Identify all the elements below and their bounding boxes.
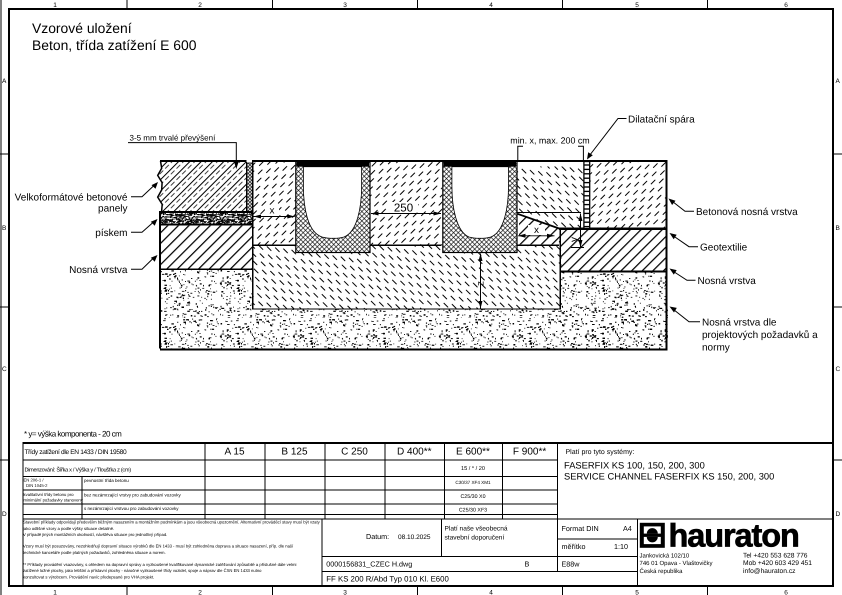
svg-text:D 400**: D 400** bbox=[397, 447, 432, 458]
svg-text:A: A bbox=[2, 78, 7, 85]
svg-text:měřítko: měřítko bbox=[562, 542, 586, 551]
svg-text:Stavební příklady odpovídají p: Stavební příklady odpovídají především b… bbox=[23, 520, 321, 525]
svg-text:6: 6 bbox=[784, 590, 788, 595]
svg-text:V případě jiných montážních ok: V případě jiných montážních okolností, n… bbox=[23, 532, 167, 537]
svg-text:C30/37 XF4 XM1: C30/37 XF4 XM1 bbox=[455, 480, 491, 485]
svg-text:Třídy zatížení dle EN 1433 / D: Třídy zatížení dle EN 1433 / DIN 19580 bbox=[25, 449, 127, 456]
svg-text:Mob +420 603 429 451: Mob +420 603 429 451 bbox=[743, 560, 812, 567]
svg-text:A: A bbox=[836, 78, 841, 85]
svg-text:x: x bbox=[270, 206, 275, 217]
svg-text:0000156831_CZEC H.dwg: 0000156831_CZEC H.dwg bbox=[326, 560, 412, 569]
svg-text:2: 2 bbox=[198, 2, 202, 9]
svg-text:3: 3 bbox=[343, 2, 347, 9]
svg-text:Geotextilie: Geotextilie bbox=[700, 243, 748, 254]
svg-text:z: z bbox=[476, 281, 487, 286]
svg-text:B 125: B 125 bbox=[281, 447, 308, 458]
svg-text:B: B bbox=[836, 225, 840, 232]
svg-text:info@hauraton.cz: info@hauraton.cz bbox=[743, 568, 796, 575]
svg-text:minimální požadavky stanoveny: minimální požadavky stanoveny bbox=[24, 498, 84, 503]
svg-text:F 900**: F 900** bbox=[513, 447, 546, 458]
svg-text:5: 5 bbox=[635, 2, 639, 9]
svg-text:x: x bbox=[534, 225, 539, 236]
svg-text:technické kanceláře podle plat: technické kanceláře podle platných požad… bbox=[23, 550, 166, 555]
svg-text:Beton, třída zatížení E 600: Beton, třída zatížení E 600 bbox=[32, 37, 197, 53]
svg-text:Vzorové uložení: Vzorové uložení bbox=[32, 20, 132, 36]
svg-text:1:10: 1:10 bbox=[614, 542, 628, 551]
svg-text:FASERFIX KS 100, 150, 200, 300: FASERFIX KS 100, 150, 200, 300 bbox=[564, 460, 705, 470]
svg-text:bez nezámrzající vrstvy pro za: bez nezámrzající vrstvy pro zabudování v… bbox=[84, 493, 182, 498]
svg-text:konzultovat s výrobcem. Provád: konzultovat s výrobcem. Provádění navíc … bbox=[23, 574, 154, 579]
svg-text:B: B bbox=[525, 560, 530, 569]
svg-text:08.10.2025: 08.10.2025 bbox=[398, 534, 431, 541]
svg-text:Dilatační spára: Dilatační spára bbox=[628, 115, 695, 126]
svg-text:kvalitativní třídy betonu pro: kvalitativní třídy betonu pro bbox=[24, 492, 75, 497]
svg-text:4: 4 bbox=[489, 2, 493, 9]
svg-text:SERVICE CHANNEL FASERFIX KS 15: SERVICE CHANNEL FASERFIX KS 150, 200, 30… bbox=[564, 472, 774, 482]
svg-text:Dimenzování: Šířka x / Výška: Dimenzování: Šířka x / Výška y / Tloušťk… bbox=[25, 467, 132, 474]
svg-text:Nosná vrstva: Nosná vrstva bbox=[698, 276, 757, 287]
svg-text:6: 6 bbox=[784, 2, 788, 9]
svg-text:zatížené ložné plochy, jako le: zatížené ložné plochy, jako letištní a p… bbox=[23, 568, 262, 573]
svg-text:D: D bbox=[2, 511, 7, 518]
svg-text:C: C bbox=[2, 366, 7, 373]
svg-text:15 / * / 20: 15 / * / 20 bbox=[461, 465, 485, 472]
svg-text:Nosná vrstva: Nosná vrstva bbox=[69, 265, 128, 276]
svg-text:Vzory musí být posuzovány, nez: Vzory musí být posuzovány, nezohledňují … bbox=[23, 544, 294, 549]
svg-text:EN 206-1 /: EN 206-1 / bbox=[24, 478, 45, 483]
svg-text:panely: panely bbox=[98, 204, 127, 215]
svg-text:Jankovická 102/10: Jankovická 102/10 bbox=[640, 553, 690, 560]
svg-text:C25/30 X0: C25/30 X0 bbox=[460, 494, 485, 500]
svg-text:3-5 mm trvalé převýšení: 3-5 mm trvalé převýšení bbox=[130, 134, 217, 143]
svg-text:* y= výška komponenta - 20 cm: * y= výška komponenta - 20 cm bbox=[24, 430, 122, 439]
svg-text:s nezámrzající vrstvou pro zab: s nezámrzající vrstvou pro zabudování vo… bbox=[84, 506, 179, 511]
svg-text:y: y bbox=[569, 237, 580, 242]
svg-text:FF KS 200 R/Abd Typ 010 Kl. E: FF KS 200 R/Abd Typ 010 Kl. E600 bbox=[326, 574, 449, 583]
svg-text:jako odlišné vzory a podle výš: jako odlišné vzory a podle výšky situace… bbox=[22, 526, 114, 531]
svg-text:5: 5 bbox=[635, 590, 639, 595]
svg-text:250: 250 bbox=[394, 203, 413, 215]
svg-text:Datum:: Datum: bbox=[366, 532, 389, 541]
svg-text:C25/30 XF3: C25/30 XF3 bbox=[459, 508, 487, 514]
svg-text:Nosná vrstva dle: Nosná vrstva dle bbox=[702, 318, 777, 329]
svg-text:pevnostní třída betonu: pevnostní třída betonu bbox=[84, 478, 129, 483]
svg-text:pískem: pískem bbox=[95, 228, 127, 239]
svg-text:A4: A4 bbox=[623, 524, 632, 533]
svg-text:1: 1 bbox=[53, 590, 57, 595]
svg-text:C 250: C 250 bbox=[341, 447, 368, 458]
svg-text:min. x, max. 200 cm: min. x, max. 200 cm bbox=[510, 136, 589, 146]
svg-text:1: 1 bbox=[53, 2, 57, 9]
svg-text:projektových požadavků a: projektových požadavků a bbox=[702, 329, 818, 341]
svg-text:C: C bbox=[836, 366, 841, 373]
svg-text:Velkoformátové betonové: Velkoformátové betonové bbox=[15, 193, 128, 204]
svg-text:normy: normy bbox=[702, 343, 730, 354]
svg-text:E88w: E88w bbox=[562, 560, 581, 569]
svg-text:A 15: A 15 bbox=[224, 447, 244, 458]
svg-text:B: B bbox=[2, 225, 6, 232]
svg-text:Tel +420 553 628 776: Tel +420 553 628 776 bbox=[743, 553, 808, 560]
svg-text:Platí naše všeobecná: Platí naše všeobecná bbox=[445, 526, 508, 533]
svg-text:4: 4 bbox=[489, 590, 493, 595]
svg-text:DIN 1045-2: DIN 1045-2 bbox=[26, 483, 48, 488]
svg-text:2: 2 bbox=[198, 590, 202, 595]
svg-text:stavební doporučení: stavební doporučení bbox=[445, 535, 505, 542]
svg-text:Česká republika: Česká republika bbox=[640, 567, 684, 575]
svg-text:hauraton: hauraton bbox=[669, 517, 799, 553]
svg-text:E 600**: E 600** bbox=[456, 447, 490, 458]
svg-text:746 01 Opava - Vlaštovičky: 746 01 Opava - Vlaštovičky bbox=[640, 560, 713, 567]
svg-text:Betonová nosná vrstva: Betonová nosná vrstva bbox=[696, 207, 798, 218]
svg-text:Format DIN: Format DIN bbox=[562, 524, 599, 533]
svg-text:3: 3 bbox=[343, 590, 347, 595]
svg-text:D: D bbox=[836, 511, 841, 518]
svg-text:** Příklady provádění vsazován: ** Příklady provádění vsazovány, s ohled… bbox=[23, 562, 296, 567]
svg-text:Platí pro tyto systémy:: Platí pro tyto systémy: bbox=[566, 448, 635, 456]
